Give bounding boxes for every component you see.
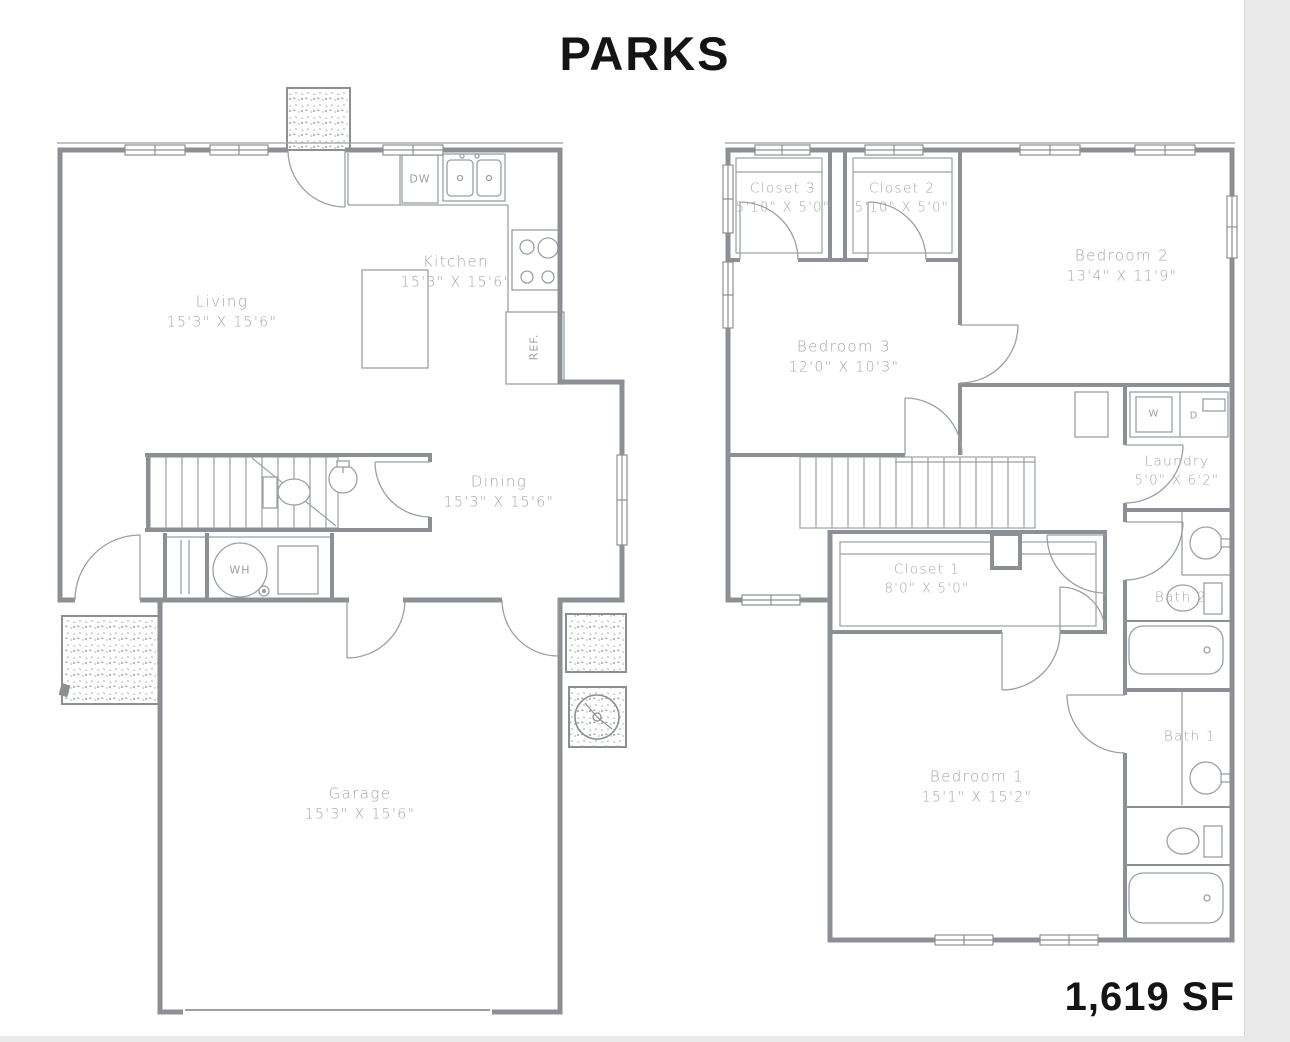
room-label-laundry: Laundry 5'0" X 6'2" <box>1135 455 1220 487</box>
water-heater-label: WH <box>229 564 250 577</box>
toilet-icon <box>263 477 310 508</box>
room-dims: 15'3" X 15'6" <box>305 808 416 822</box>
hall-chase <box>1075 392 1108 437</box>
room-dims: 15'3" X 15'6" <box>401 276 512 290</box>
room-label-bedroom1: Bedroom 1 15'1" X 15'2" <box>922 770 1033 805</box>
dishwasher-label: DW <box>409 173 430 186</box>
pedestal-sink-icon <box>329 461 357 493</box>
refrigerator-label: REF. <box>528 334 541 361</box>
room-dims: 8'0" X 5'0" <box>885 582 970 595</box>
room-dims: 15'1" X 15'2" <box>922 791 1033 805</box>
stove <box>512 230 560 290</box>
room-dims: 5'0" X 6'2" <box>1135 474 1220 487</box>
ac-unit <box>569 687 626 747</box>
room-name: Garage <box>305 787 416 802</box>
left-patio <box>59 616 160 704</box>
bath1-sink-icon <box>1190 762 1222 794</box>
entry-porch <box>287 88 350 150</box>
room-name: Closet 3 <box>736 182 830 196</box>
room-label-garage: Garage 15'3" X 15'6" <box>305 787 416 822</box>
room-label-kitchen: Kitchen 15'3" X 15'6" <box>401 255 512 290</box>
room-name: Bedroom 2 <box>1067 249 1178 264</box>
page-edge-bottom <box>0 1036 1290 1042</box>
room-label-dining: Dining 15'3" X 15'6" <box>444 475 555 510</box>
room-label-bath1: Bath 1 <box>1164 730 1216 744</box>
room-label-bedroom2: Bedroom 2 13'4" X 11'9" <box>1067 249 1178 284</box>
room-name: Closet 2 <box>855 182 949 196</box>
room-label-closet3: Closet 3 5'10" X 5'0" <box>736 182 830 214</box>
room-dims: 13'4" X 11'9" <box>1067 270 1178 284</box>
first-floor-plan <box>57 88 627 1019</box>
garage-door <box>183 1005 492 1019</box>
floorplan-drawing <box>0 0 1290 1042</box>
room-name: Bath 1 <box>1164 730 1216 744</box>
room-label-closet1: Closet 1 8'0" X 5'0" <box>885 563 970 595</box>
dryer-label: D <box>1190 411 1199 422</box>
room-name: Closet 1 <box>885 563 970 577</box>
bath1-toilet-tank <box>1204 826 1222 857</box>
right-patio <box>566 614 626 672</box>
room-name: Bath 2 <box>1155 591 1207 605</box>
total-area: 1,619 SF <box>1065 975 1235 1020</box>
room-name: Living <box>167 295 278 310</box>
room-name: Bedroom 1 <box>922 770 1033 785</box>
stairs-second-floor <box>800 457 1035 528</box>
room-label-living: Living 15'3" X 15'6" <box>167 295 278 330</box>
room-dims: 12'0" X 10'3" <box>789 361 900 375</box>
bath1-tub-icon <box>1129 873 1223 923</box>
room-name: Kitchen <box>401 255 512 270</box>
kitchen-sink <box>443 154 505 201</box>
room-name: Laundry <box>1135 455 1220 469</box>
room-label-bedroom3: Bedroom 3 12'0" X 10'3" <box>789 340 900 375</box>
washer-label: W <box>1149 409 1160 420</box>
room-dims: 15'3" X 15'6" <box>167 316 278 330</box>
room-name: Dining <box>444 475 555 490</box>
room-dims: 5'10" X 5'0" <box>736 201 830 214</box>
room-name: Bedroom 3 <box>789 340 900 355</box>
bath2-sink-icon <box>1190 527 1222 559</box>
floorplan-page: PARKS <box>0 0 1290 1042</box>
washer-dryer <box>1130 392 1228 437</box>
bath2-tub-icon <box>1129 626 1223 674</box>
room-dims: 5'10" X 5'0" <box>855 201 949 214</box>
room-label-closet2: Closet 2 5'10" X 5'0" <box>855 182 949 214</box>
bath1-toilet-icon <box>1167 828 1199 854</box>
room-label-bath2: Bath 2 <box>1155 591 1207 605</box>
room-dims: 15'3" X 15'6" <box>444 496 555 510</box>
page-edge-right <box>1244 0 1290 1042</box>
